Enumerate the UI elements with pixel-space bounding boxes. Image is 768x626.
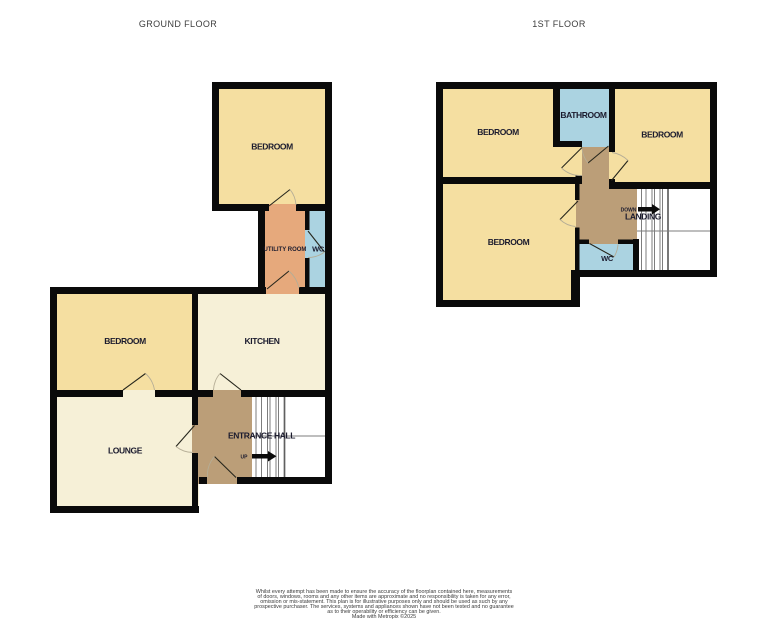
svg-text:BEDROOM: BEDROOM <box>477 127 519 137</box>
svg-text:WC: WC <box>312 245 325 254</box>
svg-text:BEDROOM: BEDROOM <box>251 142 293 152</box>
svg-text:BEDROOM: BEDROOM <box>488 237 530 247</box>
svg-text:Made with Metropix ©2025: Made with Metropix ©2025 <box>352 613 416 620</box>
svg-text:LANDING: LANDING <box>625 212 662 222</box>
svg-text:KITCHEN: KITCHEN <box>245 336 280 346</box>
svg-text:1ST FLOOR: 1ST FLOOR <box>532 19 586 29</box>
svg-text:UP: UP <box>241 455 249 461</box>
svg-text:WC: WC <box>601 254 614 263</box>
svg-text:BEDROOM: BEDROOM <box>641 130 683 140</box>
svg-text:LOUNGE: LOUNGE <box>108 446 143 456</box>
svg-text:GROUND FLOOR: GROUND FLOOR <box>139 19 217 29</box>
svg-text:BEDROOM: BEDROOM <box>104 336 146 346</box>
svg-text:UTILITY ROOM: UTILITY ROOM <box>264 247 307 253</box>
svg-text:ENTRANCE HALL: ENTRANCE HALL <box>228 431 295 441</box>
svg-text:BATHROOM: BATHROOM <box>560 110 607 120</box>
